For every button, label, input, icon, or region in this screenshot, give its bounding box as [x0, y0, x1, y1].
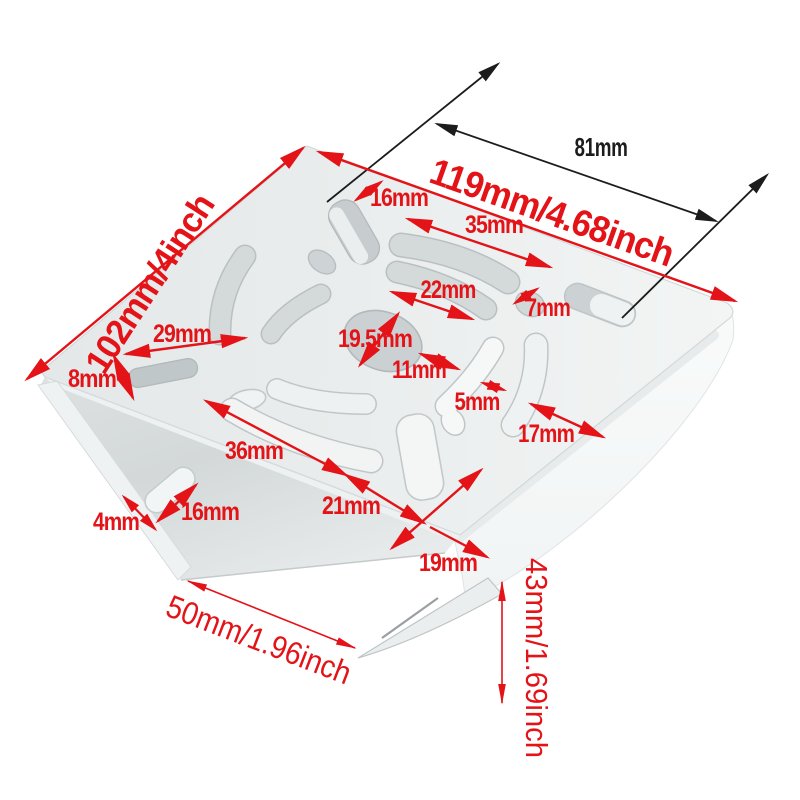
svg-text:21mm: 21mm — [322, 492, 380, 520]
svg-text:4mm: 4mm — [93, 508, 139, 536]
svg-text:35mm: 35mm — [465, 211, 523, 239]
svg-text:36mm: 36mm — [225, 437, 283, 465]
svg-text:81mm: 81mm — [575, 132, 628, 162]
svg-text:7mm: 7mm — [526, 294, 570, 322]
svg-text:16mm: 16mm — [370, 184, 428, 212]
svg-text:19mm: 19mm — [419, 549, 477, 577]
svg-text:8mm: 8mm — [68, 365, 116, 393]
svg-text:16mm: 16mm — [181, 498, 239, 526]
svg-text:11mm: 11mm — [392, 356, 446, 384]
svg-text:22mm: 22mm — [421, 276, 476, 304]
svg-text:19.5mm: 19.5mm — [338, 325, 412, 353]
svg-text:17mm: 17mm — [518, 420, 574, 448]
svg-text:5mm: 5mm — [455, 388, 500, 416]
svg-text:43mm/1.69inch: 43mm/1.69inch — [519, 558, 554, 758]
svg-text:29mm: 29mm — [153, 320, 211, 348]
